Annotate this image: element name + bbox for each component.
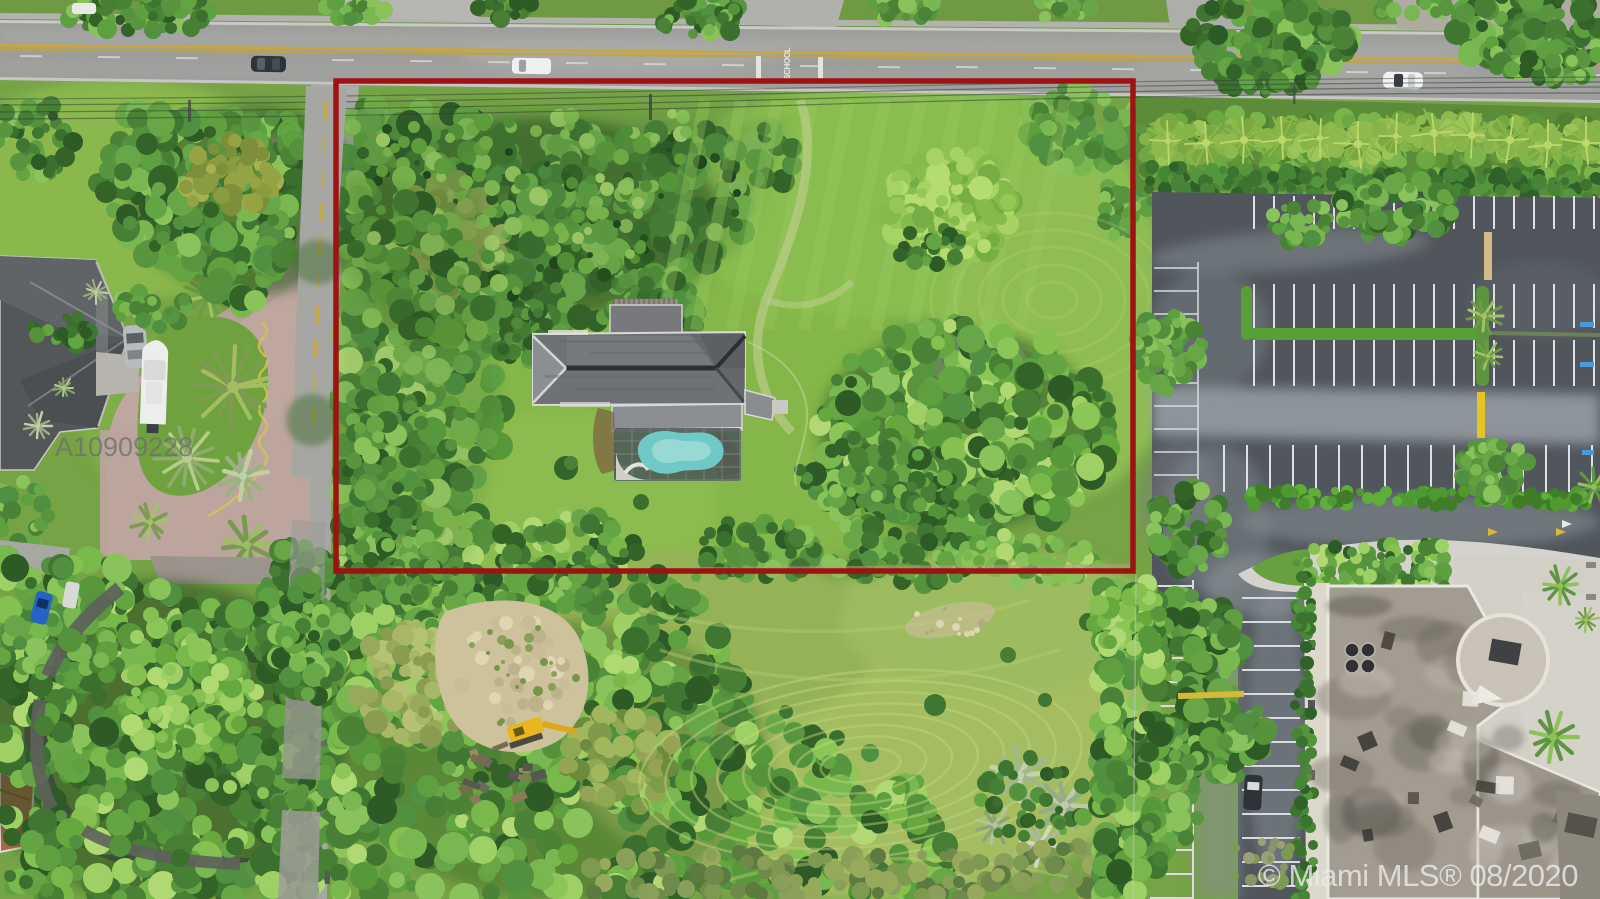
svg-text:SCHOOL: SCHOOL: [783, 47, 792, 80]
